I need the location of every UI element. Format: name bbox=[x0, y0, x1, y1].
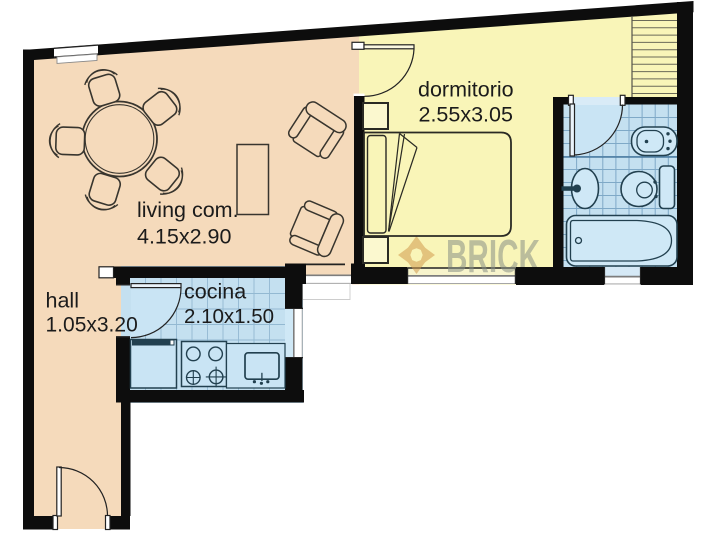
svg-text:hall: hall bbox=[46, 289, 79, 313]
svg-text:4.15x2.90: 4.15x2.90 bbox=[137, 225, 231, 249]
svg-text:2.55x3.05: 2.55x3.05 bbox=[419, 103, 513, 127]
svg-text:dormitorio: dormitorio bbox=[418, 77, 514, 101]
svg-text:living com.: living com. bbox=[137, 198, 239, 222]
svg-text:cocina: cocina bbox=[184, 280, 246, 304]
svg-text:2.10x1.50: 2.10x1.50 bbox=[184, 305, 274, 328]
svg-text:1.05x3.20: 1.05x3.20 bbox=[46, 314, 138, 337]
